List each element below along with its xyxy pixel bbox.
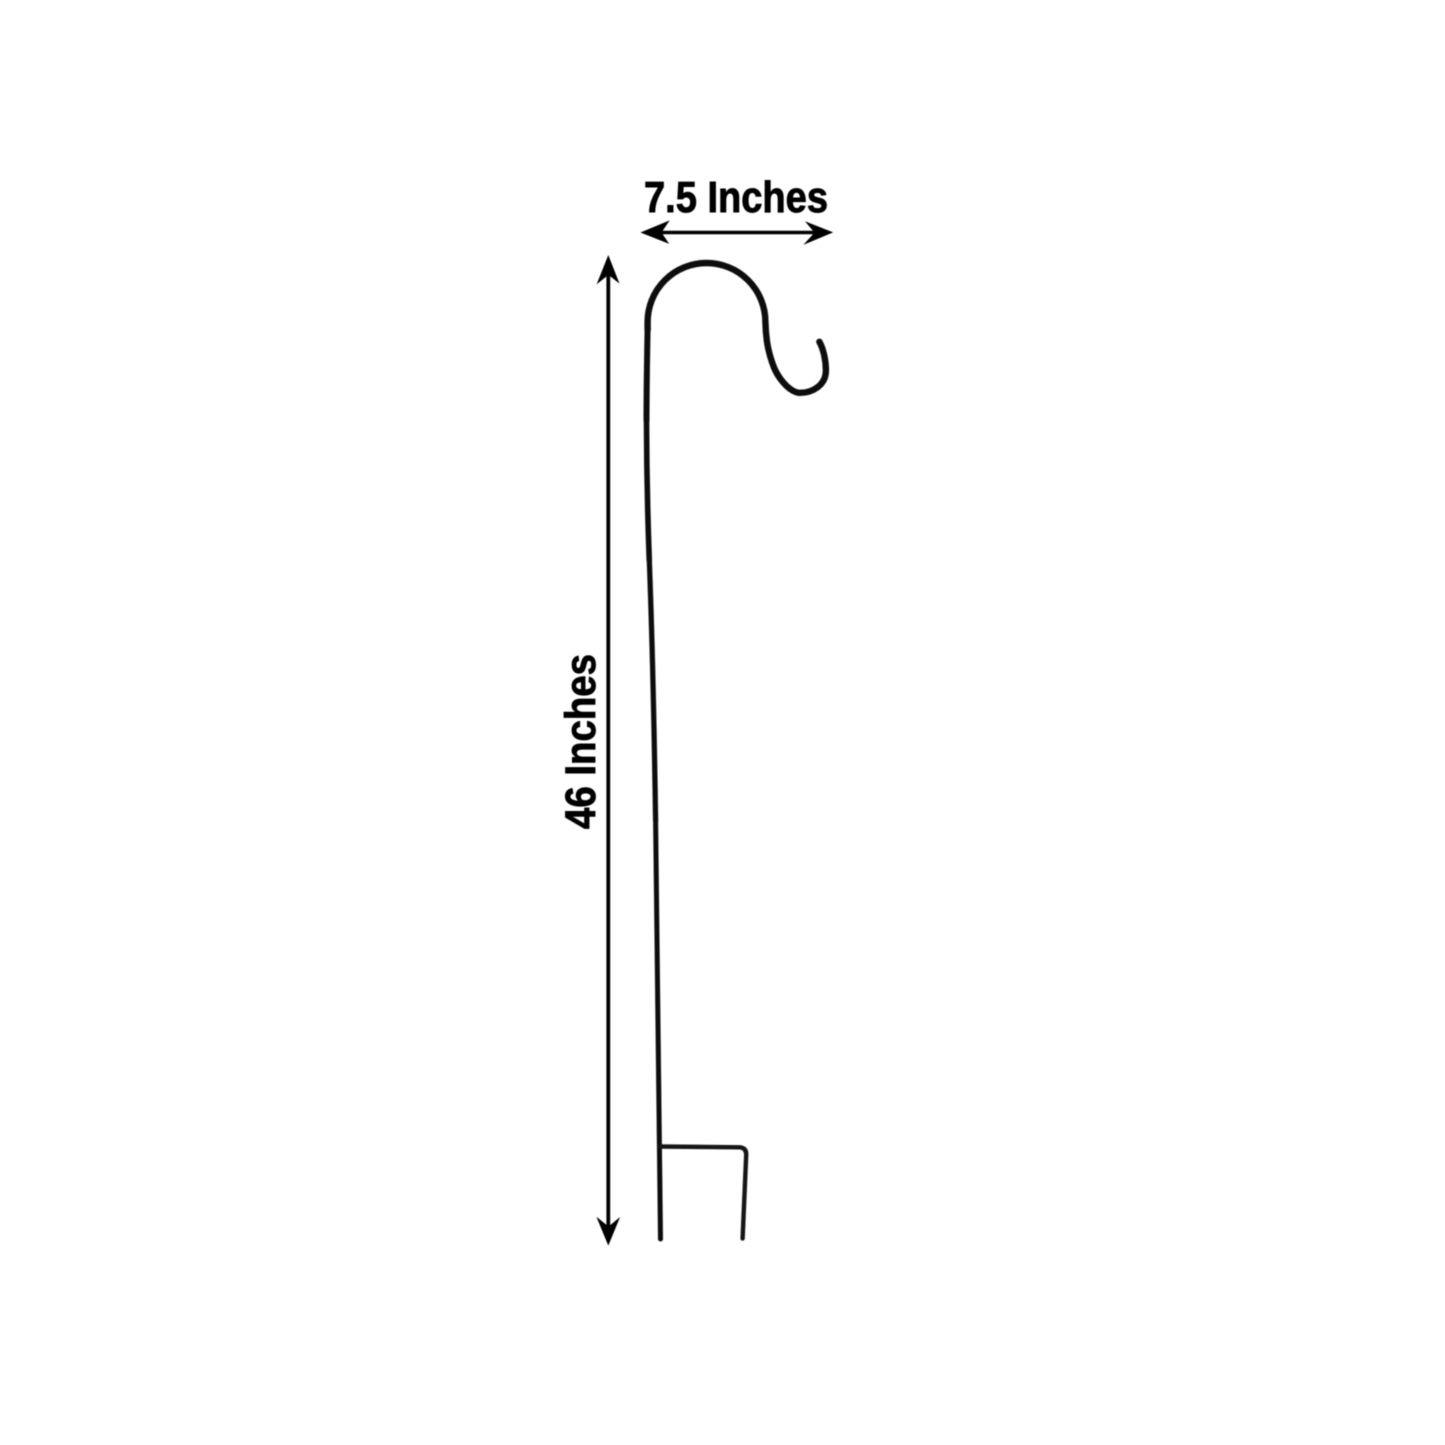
svg-text:46 Inches: 46 Inches xyxy=(557,654,605,829)
svg-text:7.5 Inches: 7.5 Inches xyxy=(644,173,828,222)
